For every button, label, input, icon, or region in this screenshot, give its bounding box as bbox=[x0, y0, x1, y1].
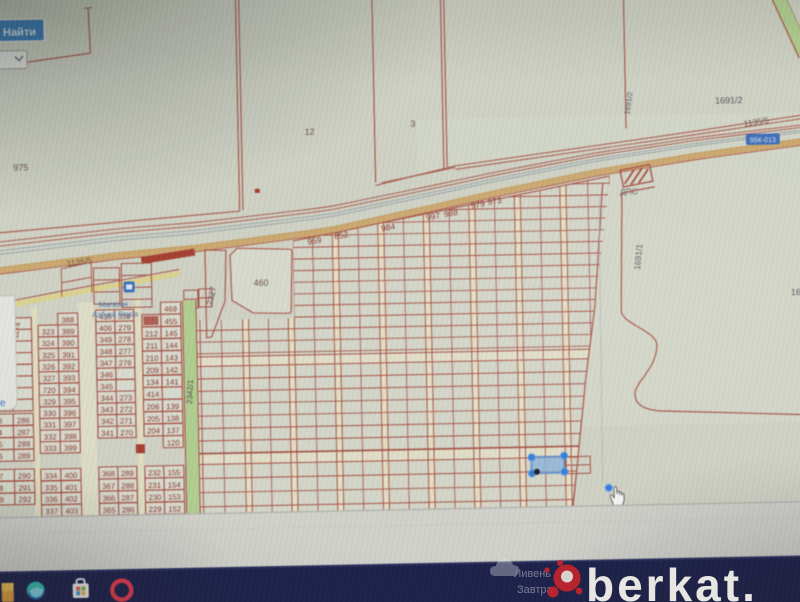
svg-text:205: 205 bbox=[147, 414, 160, 423]
svg-text:211: 211 bbox=[146, 341, 158, 350]
svg-text:47: 47 bbox=[0, 472, 3, 481]
svg-text:271: 271 bbox=[120, 417, 133, 426]
svg-text:402: 402 bbox=[65, 495, 78, 504]
svg-text:469: 469 bbox=[164, 305, 177, 314]
svg-text:287: 287 bbox=[17, 428, 30, 437]
svg-text:153: 153 bbox=[168, 492, 181, 501]
svg-text:345: 345 bbox=[100, 382, 113, 391]
svg-text:291: 291 bbox=[18, 483, 31, 492]
svg-text:210: 210 bbox=[146, 354, 159, 363]
svg-text:49: 49 bbox=[0, 496, 4, 505]
svg-text:134: 134 bbox=[146, 378, 160, 387]
svg-text:325: 325 bbox=[42, 351, 55, 360]
svg-text:366: 366 bbox=[102, 494, 115, 503]
svg-text:43: 43 bbox=[0, 416, 2, 425]
svg-text:273: 273 bbox=[119, 393, 132, 402]
svg-text:326: 326 bbox=[42, 362, 55, 371]
svg-text:e: e bbox=[0, 398, 6, 409]
svg-text:278: 278 bbox=[118, 335, 131, 344]
svg-text:403: 403 bbox=[65, 507, 78, 516]
svg-text:341: 341 bbox=[101, 429, 114, 438]
svg-text:393: 393 bbox=[62, 374, 75, 383]
svg-text:144: 144 bbox=[165, 341, 179, 350]
svg-text:230: 230 bbox=[148, 493, 161, 502]
svg-text:388: 388 bbox=[61, 315, 74, 324]
svg-text:Магазин: Магазин bbox=[99, 299, 128, 309]
svg-text:289: 289 bbox=[121, 469, 134, 478]
svg-text:975: 975 bbox=[13, 162, 28, 172]
svg-text:152: 152 bbox=[168, 504, 181, 513]
svg-text:391: 391 bbox=[62, 350, 75, 359]
svg-text:342: 342 bbox=[101, 417, 114, 426]
svg-text:343: 343 bbox=[101, 405, 114, 414]
svg-text:Найти: Найти bbox=[3, 26, 36, 39]
svg-text:335: 335 bbox=[45, 483, 58, 492]
svg-text:Азбука Вкуса: Азбука Вкуса bbox=[92, 309, 139, 319]
svg-text:120: 120 bbox=[167, 438, 180, 447]
svg-text:231: 231 bbox=[148, 481, 161, 490]
svg-text:143: 143 bbox=[165, 353, 178, 362]
svg-text:324: 324 bbox=[42, 339, 56, 348]
svg-text:346: 346 bbox=[100, 370, 113, 379]
svg-text:292: 292 bbox=[18, 495, 31, 504]
svg-text:401: 401 bbox=[65, 483, 78, 492]
svg-text:138: 138 bbox=[166, 414, 179, 423]
svg-text:3: 3 bbox=[410, 119, 415, 129]
svg-text:286: 286 bbox=[17, 416, 30, 425]
svg-text:270: 270 bbox=[120, 428, 133, 437]
svg-text:327: 327 bbox=[42, 374, 55, 383]
svg-text:290: 290 bbox=[18, 471, 31, 480]
svg-text:337: 337 bbox=[45, 507, 58, 516]
svg-text:45: 45 bbox=[0, 440, 3, 449]
svg-text:288: 288 bbox=[121, 481, 134, 490]
svg-text:323: 323 bbox=[42, 328, 55, 337]
svg-text:347: 347 bbox=[100, 359, 113, 368]
svg-text:229: 229 bbox=[149, 505, 162, 514]
svg-text:392: 392 bbox=[62, 362, 75, 371]
svg-text:209: 209 bbox=[146, 366, 159, 375]
svg-text:400: 400 bbox=[64, 471, 77, 480]
svg-text:367: 367 bbox=[102, 482, 115, 491]
svg-text:397: 397 bbox=[63, 420, 76, 429]
svg-text:1691/2: 1691/2 bbox=[715, 95, 743, 106]
svg-text:137: 137 bbox=[167, 426, 180, 435]
svg-text:155: 155 bbox=[167, 468, 180, 477]
svg-text:141: 141 bbox=[166, 378, 179, 387]
svg-text:272: 272 bbox=[120, 405, 133, 414]
svg-text:139: 139 bbox=[166, 402, 179, 411]
svg-text:279: 279 bbox=[118, 324, 131, 333]
svg-text:390: 390 bbox=[62, 339, 75, 348]
svg-text:332: 332 bbox=[44, 432, 57, 441]
svg-text:204: 204 bbox=[147, 427, 161, 436]
svg-text:394: 394 bbox=[63, 385, 77, 394]
svg-text:368: 368 bbox=[102, 469, 115, 478]
svg-text:331: 331 bbox=[43, 421, 56, 430]
svg-text:336: 336 bbox=[45, 495, 58, 504]
svg-text:720: 720 bbox=[43, 386, 56, 395]
svg-text:396: 396 bbox=[63, 409, 76, 418]
svg-text:12: 12 bbox=[304, 127, 314, 137]
svg-text:232: 232 bbox=[148, 469, 161, 478]
svg-text:287: 287 bbox=[121, 493, 134, 502]
svg-text:288: 288 bbox=[17, 440, 30, 449]
svg-text:95К-013: 95К-013 bbox=[750, 137, 776, 145]
svg-text:154: 154 bbox=[168, 480, 182, 489]
svg-text:16: 16 bbox=[791, 287, 800, 297]
svg-text:289: 289 bbox=[18, 452, 31, 461]
svg-text:286: 286 bbox=[122, 505, 135, 514]
svg-text:344: 344 bbox=[100, 394, 114, 403]
svg-text:398: 398 bbox=[64, 432, 77, 441]
svg-text:348: 348 bbox=[99, 347, 112, 356]
svg-text:365: 365 bbox=[103, 506, 116, 515]
svg-text:145: 145 bbox=[165, 329, 178, 338]
svg-text:389: 389 bbox=[62, 327, 75, 336]
svg-text:330: 330 bbox=[43, 409, 56, 418]
svg-text:48: 48 bbox=[0, 484, 4, 493]
svg-text:333: 333 bbox=[44, 444, 57, 453]
svg-text:46: 46 bbox=[0, 452, 3, 461]
svg-text:406: 406 bbox=[99, 324, 112, 333]
svg-text:276: 276 bbox=[119, 358, 132, 367]
svg-text:212: 212 bbox=[145, 329, 158, 338]
svg-text:399: 399 bbox=[64, 444, 77, 453]
svg-text:334: 334 bbox=[44, 471, 58, 480]
svg-text:2342/1: 2342/1 bbox=[185, 379, 195, 404]
svg-text:349: 349 bbox=[99, 335, 112, 344]
svg-text:142: 142 bbox=[165, 365, 178, 374]
svg-text:455: 455 bbox=[164, 317, 177, 326]
svg-text:277: 277 bbox=[118, 347, 131, 356]
svg-text:414: 414 bbox=[146, 390, 160, 399]
svg-text:460: 460 bbox=[254, 278, 269, 288]
svg-text:395: 395 bbox=[63, 397, 76, 406]
svg-text:329: 329 bbox=[43, 397, 56, 406]
svg-text:206: 206 bbox=[147, 402, 160, 411]
